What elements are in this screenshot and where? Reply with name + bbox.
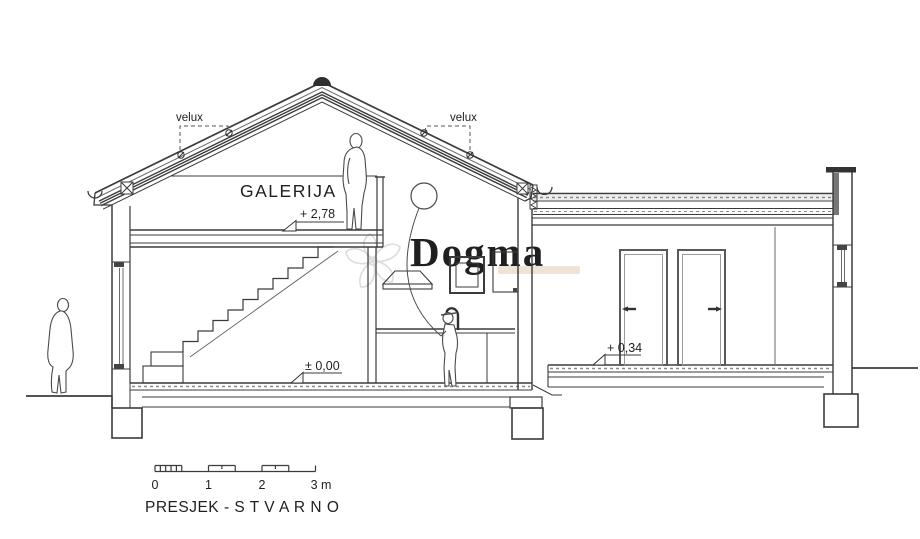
watermark-flower-icon (346, 234, 400, 287)
gallery-room-label: GALERIJA (240, 181, 337, 201)
ridge-cap (313, 77, 331, 86)
scale-tick-0: 0 (152, 478, 159, 492)
person-outside (48, 299, 74, 394)
wall-plate-right (517, 183, 528, 194)
velux-label-left: velux (176, 112, 203, 124)
parapet-inner-face (833, 173, 839, 215)
person-on-gallery (343, 134, 366, 230)
annotations: GALERIJA + 2,78 ± 0,00 + 0,34 (240, 181, 642, 383)
scale-bar: 0 1 2 3 m (152, 466, 332, 493)
elevation-text: ± 0,00 (305, 359, 340, 373)
watermark-subtext-bar (498, 266, 580, 274)
elevation-text: + 2,78 (300, 207, 335, 221)
window-head-mark (837, 245, 847, 250)
walls (112, 172, 852, 408)
scale-tick-3: 3 m (311, 478, 332, 492)
elevation-text: + 0,34 (607, 341, 642, 355)
window-sill-mark (114, 364, 124, 369)
section-drawing: Dogma (0, 0, 920, 539)
child-at-counter (441, 313, 458, 387)
hat-brim (441, 313, 456, 315)
architectural-section-sheet: Dogma (0, 0, 920, 539)
elevation-marker-gallery: + 2,78 (283, 207, 344, 231)
parapet-cap (826, 167, 856, 173)
elevation-marker-ground: ± 0,00 (291, 359, 342, 383)
wall-plate-left (121, 182, 133, 194)
door-right (678, 250, 725, 365)
scale-tick-2: 2 (259, 478, 266, 492)
velux-label-right: velux (450, 112, 477, 124)
scale-tick-1: 1 (205, 478, 212, 492)
foundations-and-slabs (112, 365, 858, 439)
flat-roof (530, 167, 856, 225)
drawing-title: PRESJEK - S T V A R N O (145, 499, 339, 516)
figures (48, 134, 458, 394)
stair-stringer (190, 251, 338, 357)
watermark: Dogma (346, 229, 580, 287)
window-sill-mark (837, 282, 847, 287)
window-head-mark (114, 262, 124, 267)
